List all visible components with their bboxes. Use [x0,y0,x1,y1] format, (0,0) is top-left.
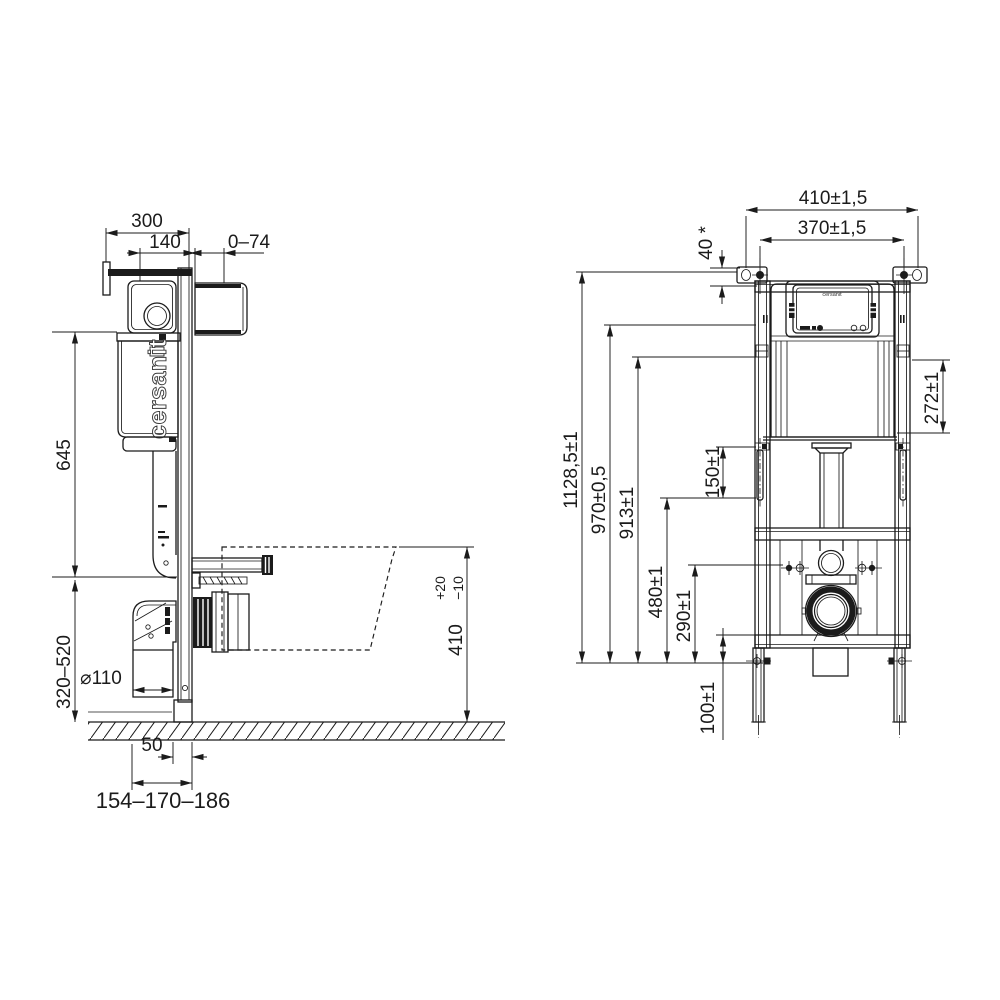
installation-frame-drawing: cersanit [0,0,1000,1000]
dim-label: 410±1,5 [799,188,868,209]
panel-brand-label: cersanit [822,292,842,298]
dim-leg-adjust-100: 100±1 [576,628,763,740]
dim-label: 970±0,5 [589,466,610,535]
dim-label: 300 [131,211,163,232]
dim-tolerance-plus: +20 [432,576,448,600]
leg-screw-right [887,654,912,668]
flush-pipe-side [153,451,176,578]
dim-label: 150±1 [703,446,724,499]
dim-height-970: 970±0,5 [589,325,756,663]
dim-label: 370±1,5 [798,218,867,239]
side-view: cersanit [52,211,505,813]
panel-clip-left [789,303,795,318]
flush-pipe-horizontal [192,555,273,575]
dim-bowl-height-410: 410 +20 −10 [399,547,474,722]
cistern-brand-logo: cersanit [144,339,172,439]
frame-rail-side [174,268,192,722]
bowl-fixing-right [855,561,882,575]
dim-tolerance-minus: −10 [450,576,466,600]
wall-bracket-left [737,258,768,294]
dim-label: 100±1 [698,682,719,735]
dim-label: 272±1 [922,372,943,425]
dim-label: 50 [141,735,162,756]
drain-elbow-side [133,601,176,697]
front-view: cersanit [561,188,950,740]
technical-drawing-page: cersanit [0,0,1000,1000]
dim-label: 410 [446,624,467,656]
dim-fixing-centres-370: 370±1,5 [760,218,904,266]
panel-clip-right [871,303,877,318]
dim-label: 290±1 [674,590,695,643]
drain-connector-side [193,592,249,652]
drain-outlet-box [813,648,848,676]
dim-tank-height-272: 272±1 [897,360,950,433]
dim-height-480: 480±1 [646,498,756,663]
dim-outlet-height-320-520: 320–520 [54,580,78,722]
cistern-side: cersanit [117,281,180,451]
dim-label: 140 [149,232,181,253]
dim-bracket-offset-40: 40 * [696,225,757,304]
frame-legs [746,648,912,738]
dim-label: 480±1 [646,566,667,619]
dim-label: ⌀110 [80,668,122,689]
frame-lower-section [780,540,882,676]
bowl-fixing-left [781,561,809,575]
dim-leg-offset-50: 50 [141,735,207,790]
toilet-bowl-outline [222,547,396,650]
mounting-rod-side [192,573,247,588]
dim-label: 913±1 [617,487,638,540]
dim-stud-length-150: 150±1 [703,446,756,499]
wall-mount-box [195,283,247,335]
leg-screw-left [746,654,771,668]
access-panel: cersanit [786,281,879,337]
drain-outlet-front [802,586,861,642]
dim-label: 40 * [696,225,717,259]
dim-label: 0–74 [228,232,271,253]
dim-label: 645 [54,439,75,471]
dim-label: 154–170–186 [96,788,231,813]
cistern-front [763,284,897,528]
dim-label: 1128,5±1 [561,431,582,509]
dim-drain-diameter-110: ⌀110 [80,668,173,693]
dim-wall-gap-0-74: 0–74 [183,232,271,283]
dim-label: 320–520 [54,635,75,709]
